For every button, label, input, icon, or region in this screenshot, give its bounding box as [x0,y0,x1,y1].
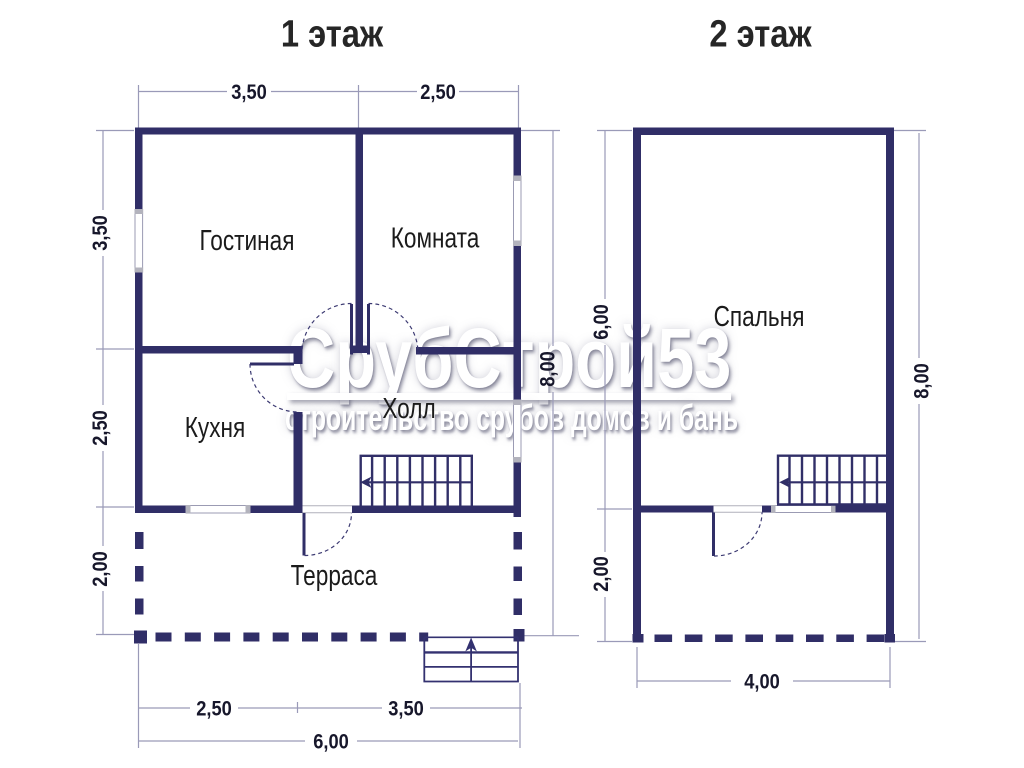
svg-text:6,00: 6,00 [590,304,614,340]
svg-text:Кухня: Кухня [185,410,246,443]
svg-text:2,00: 2,00 [590,556,614,592]
svg-text:Комната: Комната [391,221,480,254]
svg-text:Холл: Холл [382,391,435,424]
svg-text:4,00: 4,00 [744,670,780,694]
svg-text:1 этаж: 1 этаж [281,12,384,55]
svg-text:2,50: 2,50 [420,81,456,105]
svg-text:8,00: 8,00 [910,363,934,399]
svg-text:Гостиная: Гостиная [200,223,295,256]
svg-text:Терраса: Терраса [291,558,378,591]
svg-text:2,00: 2,00 [89,551,113,587]
svg-text:6,00: 6,00 [313,730,349,754]
svg-text:2,50: 2,50 [89,410,113,446]
svg-text:3,50: 3,50 [388,697,424,721]
svg-text:2,50: 2,50 [196,697,232,721]
svg-text:2 этаж: 2 этаж [709,12,812,55]
svg-text:3,50: 3,50 [89,215,113,251]
svg-text:8,00: 8,00 [536,351,560,387]
svg-text:Спальня: Спальня [714,299,805,332]
svg-text:3,50: 3,50 [231,81,267,105]
